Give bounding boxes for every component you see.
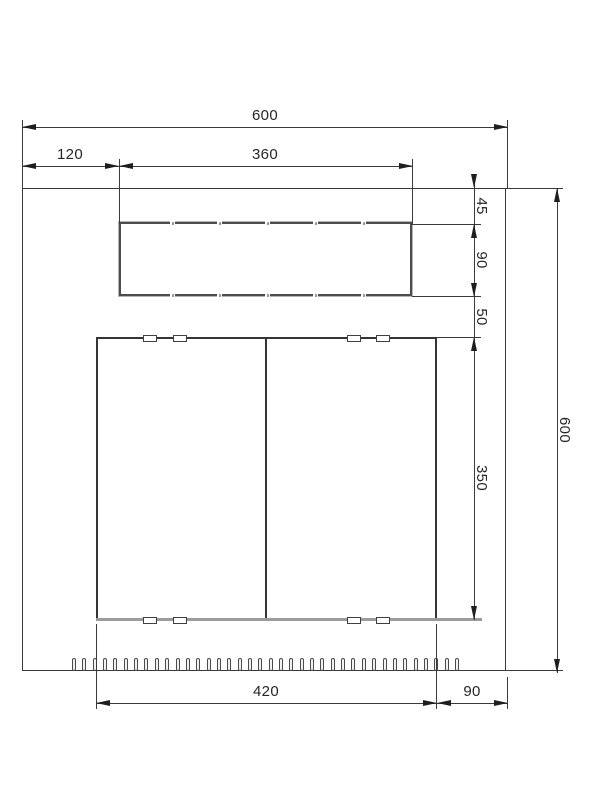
hinge-clip bbox=[143, 617, 157, 624]
vent-slot bbox=[424, 658, 428, 671]
vent-slot bbox=[279, 658, 283, 671]
arrowhead bbox=[423, 700, 437, 706]
dim-line-overall-width bbox=[22, 127, 508, 128]
vent-slot bbox=[113, 658, 117, 671]
vent-slot bbox=[455, 658, 459, 671]
dim-label-top-margin: 45 bbox=[472, 184, 490, 228]
slot-tick-mark bbox=[267, 222, 269, 225]
vent-slot bbox=[414, 658, 418, 671]
slot-tick-mark bbox=[315, 222, 317, 225]
vent-slot bbox=[217, 658, 221, 671]
vent-slot bbox=[186, 658, 190, 671]
slot-tick-mark bbox=[315, 294, 317, 297]
vent-slot bbox=[155, 658, 159, 671]
vent-slot bbox=[403, 658, 407, 671]
extension-line bbox=[96, 624, 97, 709]
arrowhead bbox=[471, 606, 477, 620]
hinge-clip bbox=[173, 335, 187, 342]
vent-slot bbox=[331, 658, 335, 671]
dim-line-offset-and-slot bbox=[22, 166, 413, 167]
extension-line bbox=[507, 120, 508, 188]
hinge-clip bbox=[173, 617, 187, 624]
vent-slot bbox=[362, 658, 366, 671]
dim-label-offset-left: 120 bbox=[40, 146, 100, 164]
vent-slot bbox=[300, 658, 304, 671]
arrowhead bbox=[105, 163, 119, 169]
vent-slot bbox=[258, 658, 262, 671]
hinge-clip bbox=[376, 335, 390, 342]
hinge-clip bbox=[376, 617, 390, 624]
dim-label-slot-door-gap: 50 bbox=[472, 295, 490, 339]
vent-slot bbox=[372, 658, 376, 671]
vent-slot bbox=[144, 658, 148, 671]
slot-tick-mark bbox=[172, 294, 174, 297]
slot-tick-mark bbox=[363, 222, 365, 225]
slot-tick-mark bbox=[267, 294, 269, 297]
dim-label-door-height: 350 bbox=[472, 456, 490, 500]
arrowhead bbox=[119, 163, 133, 169]
dim-label-overall-height: 600 bbox=[555, 408, 573, 452]
dim-label-slot-height: 90 bbox=[472, 238, 490, 282]
dim-label-door-width: 420 bbox=[236, 683, 296, 701]
vent-slot bbox=[341, 658, 345, 671]
vent-slot bbox=[383, 658, 387, 671]
vent-slot bbox=[445, 658, 449, 671]
vent-slot bbox=[72, 658, 76, 671]
vent-slot bbox=[310, 658, 314, 671]
door-leaf-divider bbox=[265, 337, 267, 620]
arrowhead bbox=[22, 163, 36, 169]
arrowhead bbox=[399, 163, 413, 169]
arrowhead bbox=[22, 124, 36, 130]
hinge-clip bbox=[347, 617, 361, 624]
vent-slot bbox=[320, 658, 324, 671]
vent-slot bbox=[269, 658, 273, 671]
vent-slot bbox=[393, 658, 397, 671]
arrowhead bbox=[96, 700, 110, 706]
arrowhead bbox=[554, 659, 560, 673]
vent-slot bbox=[289, 658, 293, 671]
slot-tick-mark bbox=[219, 222, 221, 225]
slot-tick-mark bbox=[363, 294, 365, 297]
vent-slot bbox=[82, 658, 86, 671]
vent-slot bbox=[134, 658, 138, 671]
vent-slot bbox=[238, 658, 242, 671]
hinge-clip bbox=[143, 335, 157, 342]
vent-slot bbox=[248, 658, 252, 671]
vent-slot bbox=[103, 658, 107, 671]
cable-slot-outline bbox=[119, 222, 412, 296]
vent-slot bbox=[351, 658, 355, 671]
slot-tick-mark bbox=[172, 222, 174, 225]
vent-slot bbox=[176, 658, 180, 671]
arrowhead bbox=[554, 188, 560, 202]
vent-slot bbox=[165, 658, 169, 671]
dim-label-slot-width: 360 bbox=[235, 146, 295, 164]
extension-line bbox=[436, 624, 437, 709]
vent-slot bbox=[196, 658, 200, 671]
vent-slot bbox=[124, 658, 128, 671]
hinge-clip bbox=[347, 335, 361, 342]
slot-tick-mark bbox=[219, 294, 221, 297]
arrowhead bbox=[471, 337, 477, 351]
dim-label-overall-width: 600 bbox=[235, 107, 295, 125]
vent-slot bbox=[207, 658, 211, 671]
dim-label-right-margin: 90 bbox=[442, 683, 502, 701]
extension-line bbox=[22, 120, 23, 188]
technical-drawing-canvas: 600 120 360 420 90 45 90 50 350 600 bbox=[0, 0, 600, 800]
vent-slot bbox=[227, 658, 231, 671]
arrowhead bbox=[494, 124, 508, 130]
